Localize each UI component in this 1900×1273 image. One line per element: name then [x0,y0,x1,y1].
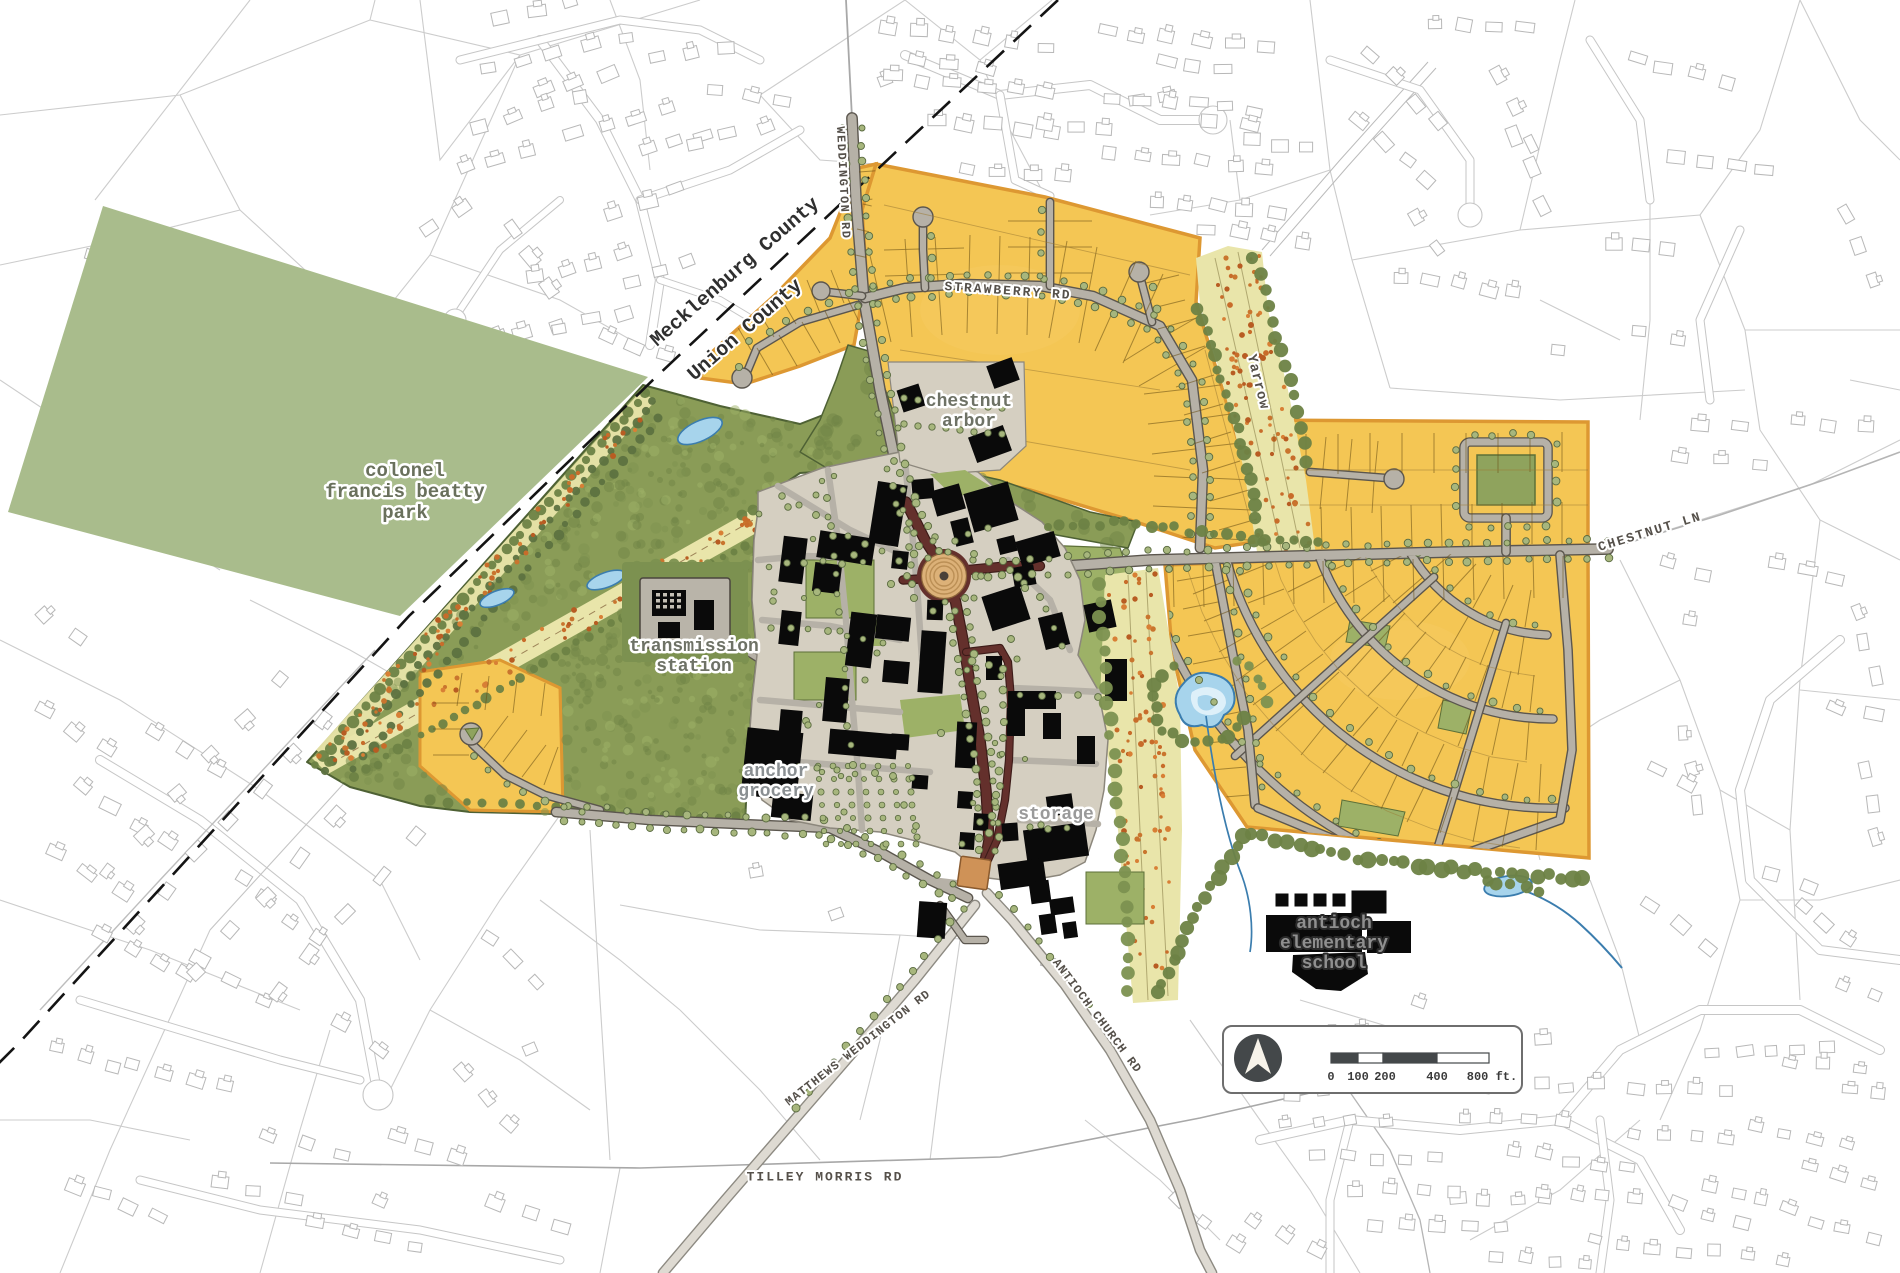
svg-text:grocery: grocery [738,782,814,802]
svg-text:100: 100 [1347,1070,1369,1084]
svg-text:antioch: antioch [1296,914,1372,934]
svg-text:school: school [1302,954,1367,974]
svg-text:station: station [656,657,732,677]
svg-text:200: 200 [1374,1070,1396,1084]
svg-text:chestnut: chestnut [926,392,1012,412]
svg-text:anchor: anchor [744,762,809,782]
svg-text:elementary: elementary [1280,934,1388,954]
svg-text:storage: storage [1018,805,1094,825]
svg-text:transmission: transmission [629,637,759,657]
svg-text:francis beatty: francis beatty [325,481,485,503]
svg-text:400: 400 [1426,1070,1448,1084]
svg-text:TILLEY MORRIS RD: TILLEY MORRIS RD [747,1169,904,1184]
svg-text:arbor: arbor [942,412,996,432]
svg-text:colonel: colonel [365,460,445,482]
svg-text:0: 0 [1327,1070,1334,1084]
svg-text:park: park [382,502,428,524]
svg-text:800 ft.: 800 ft. [1467,1070,1517,1084]
